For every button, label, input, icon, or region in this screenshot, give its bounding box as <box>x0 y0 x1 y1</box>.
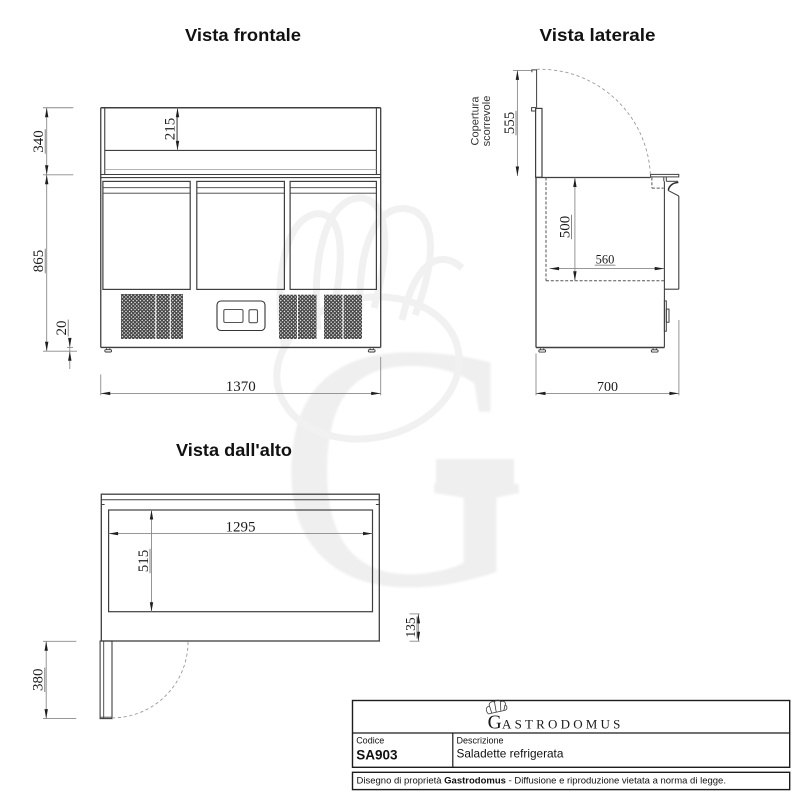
svg-text:515: 515 <box>136 550 152 573</box>
svg-text:Vista laterale: Vista laterale <box>540 25 656 45</box>
svg-text:Saladette refrigerata: Saladette refrigerata <box>457 747 564 761</box>
svg-text:215: 215 <box>163 118 179 141</box>
svg-text:Codice: Codice <box>356 736 384 746</box>
svg-text:G: G <box>488 713 502 734</box>
svg-text:SA903: SA903 <box>356 748 398 763</box>
svg-text:Vista frontale: Vista frontale <box>185 25 301 45</box>
svg-text:380: 380 <box>31 669 47 692</box>
svg-text:Disegno di proprietà Gastrodom: Disegno di proprietà Gastrodomus - Diffu… <box>357 776 726 787</box>
svg-text:Vista dall'alto: Vista dall'alto <box>176 440 292 460</box>
svg-text:ASTRODOMUS: ASTRODOMUS <box>502 717 624 732</box>
svg-text:Descrizione: Descrizione <box>457 736 504 746</box>
svg-text:Copertura: Copertura <box>470 96 482 146</box>
svg-text:135: 135 <box>403 617 418 638</box>
svg-text:20: 20 <box>54 321 70 336</box>
svg-text:555: 555 <box>502 112 518 135</box>
svg-text:340: 340 <box>31 130 47 153</box>
svg-text:scorrevole: scorrevole <box>481 96 493 147</box>
svg-text:1370: 1370 <box>226 379 256 395</box>
svg-text:500: 500 <box>557 216 573 239</box>
svg-text:865: 865 <box>31 250 47 273</box>
svg-text:560: 560 <box>596 253 615 267</box>
svg-text:1295: 1295 <box>226 519 256 535</box>
svg-text:700: 700 <box>597 380 618 395</box>
